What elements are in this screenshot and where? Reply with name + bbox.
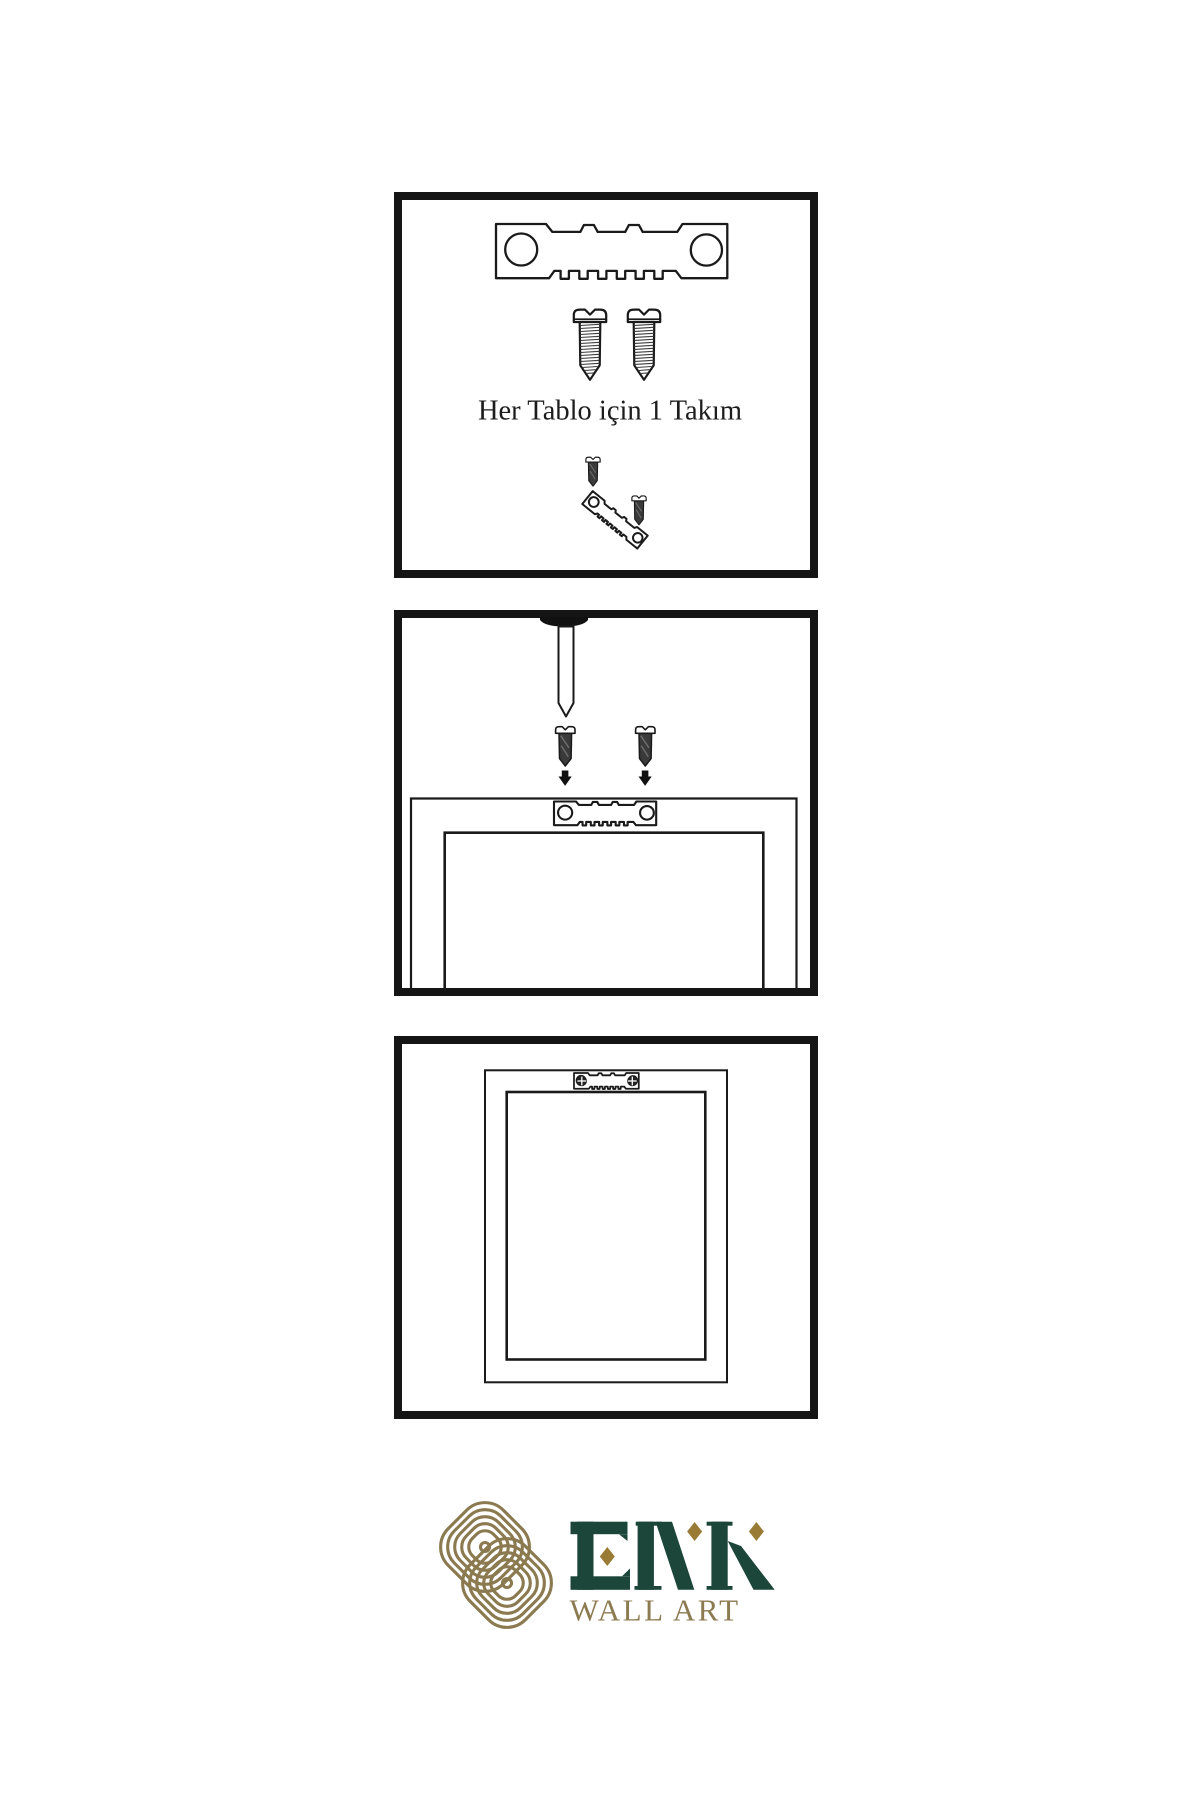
svg-text:Her Tablo için 1 Takım: Her Tablo için 1 Takım <box>478 396 742 427</box>
svg-text:WALL ART: WALL ART <box>569 1593 740 1628</box>
